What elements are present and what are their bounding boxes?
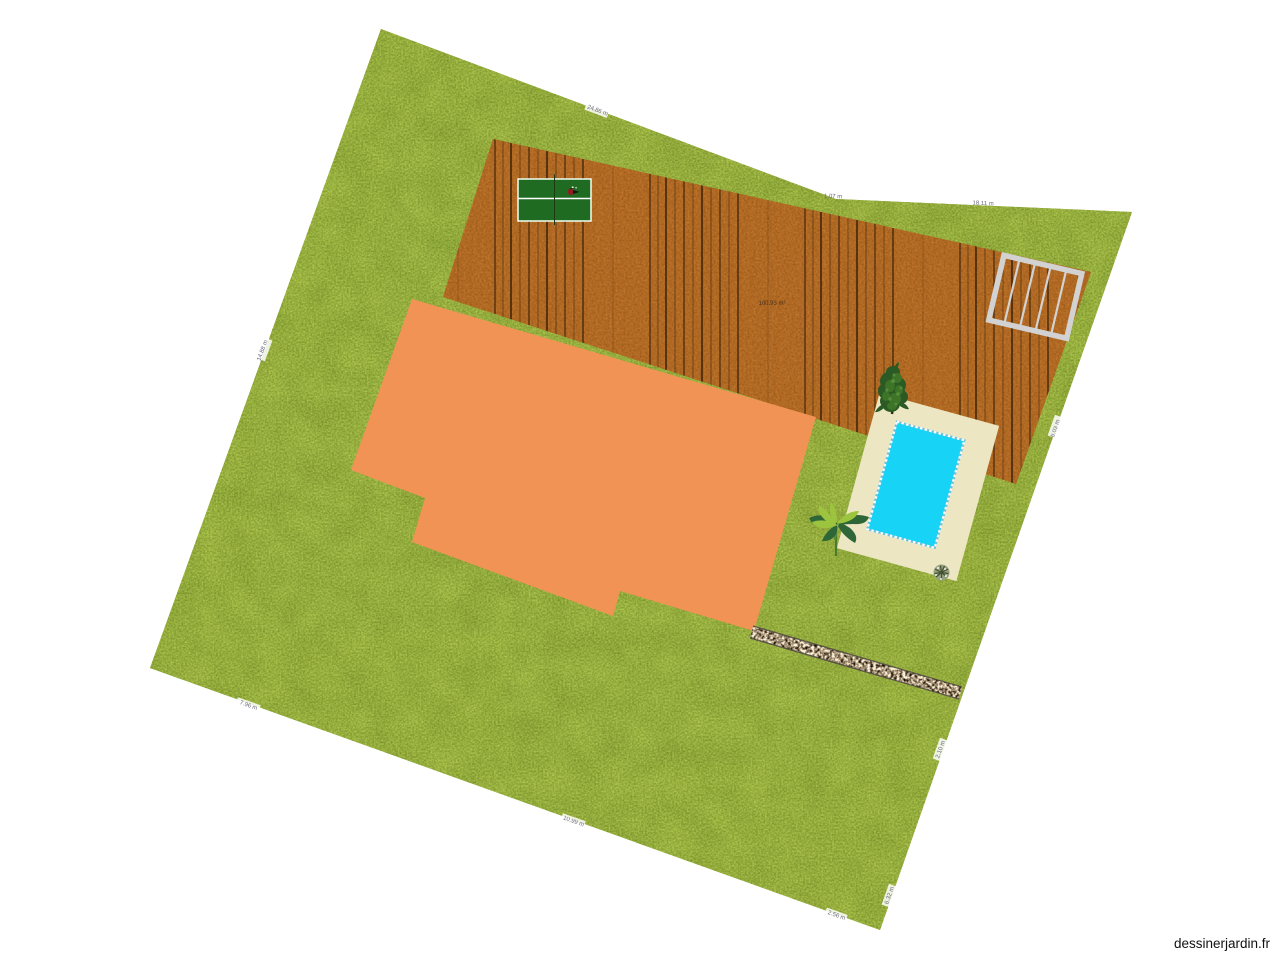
svg-text:1.07 m: 1.07 m [824,194,843,201]
svg-text:100.93 m²: 100.93 m² [758,301,785,307]
svg-text:dessinerjardin.fr: dessinerjardin.fr [1174,936,1271,951]
svg-text:18.11 m: 18.11 m [972,201,993,208]
